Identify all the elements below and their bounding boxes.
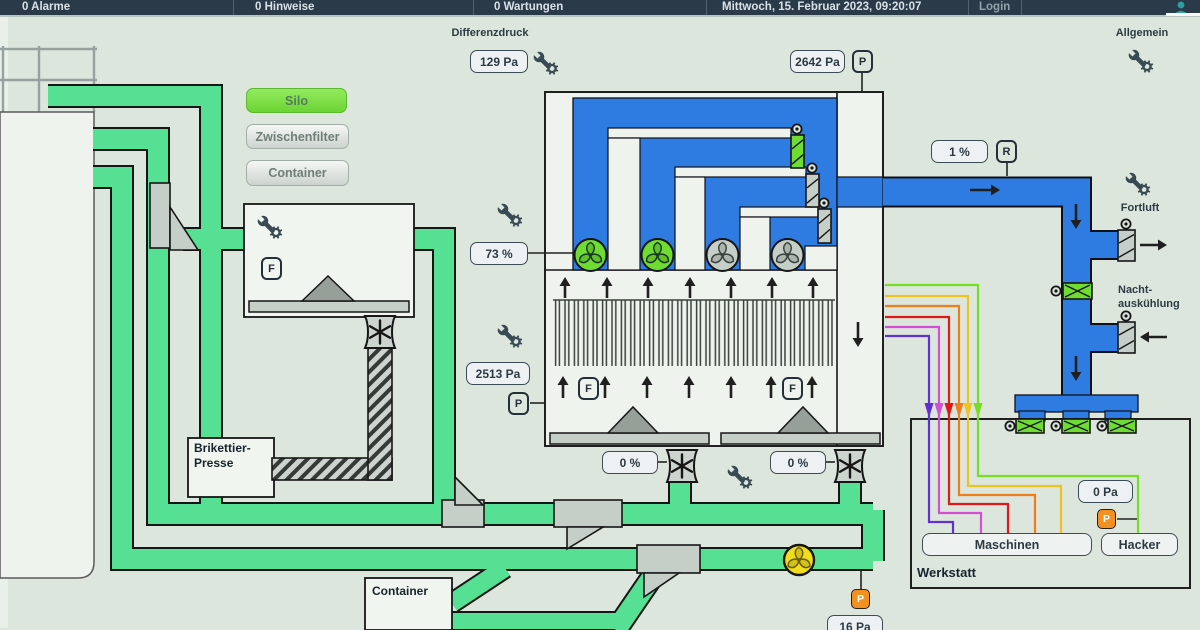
damper-icon [818,209,831,243]
wrench-gear-icon[interactable] [494,200,522,226]
discharge-right-chip[interactable]: 0 % [770,451,826,474]
silo-vessel [0,112,94,578]
differenzdruck-label: Differenzdruck [420,27,560,39]
fan-icon [575,239,607,271]
filter-monitor-badge: F [782,377,803,400]
filter-diff-pressure-chip[interactable]: 129 Pa [470,50,528,73]
pressure-alert-badge: P [851,589,870,609]
damper-icon [1108,419,1136,433]
header-active-strip [1166,13,1200,16]
damper-icon [791,135,804,168]
login-button[interactable]: Login [979,1,1010,15]
header-hints[interactable]: 0 Hinweise [255,1,314,15]
fan-speed-chip[interactable]: 73 % [470,242,528,265]
damper-icon [1063,283,1092,299]
pressure-badge: P [852,50,873,73]
motor-icon [1051,421,1060,430]
header-underline [0,15,1200,17]
motor-icon [1121,219,1130,228]
filter-monitor-badge: F [261,257,282,280]
wrench-gear-icon[interactable] [724,462,752,488]
pressure-alert-badge: P [1097,509,1116,529]
wrench-gear-icon[interactable] [1125,46,1153,72]
damper-icon [1016,419,1044,433]
rotary-valve-icon [835,450,865,482]
machine-duct-line [885,317,1008,533]
container-label: Container [372,584,428,599]
flow-arrow-icon [1140,332,1167,343]
motor-icon [807,163,816,172]
machine-duct-line [885,327,981,533]
filter-bags [553,300,835,366]
rotary-valve-icon [667,450,697,482]
header-alarms[interactable]: 0 Alarme [22,1,70,15]
werkstatt-pressure-chip[interactable]: 0 Pa [1078,480,1133,503]
regulator-badge: R [996,140,1017,163]
nachtauskuehlung-label-2: auskühlung [1118,298,1180,310]
header-bar: 0 Alarme 0 Hinweise 0 Wartungen Mittwoch… [0,0,1200,16]
hacker-button[interactable]: Hacker [1101,533,1178,556]
damper-icon [1062,419,1090,433]
pressure-badge: P [508,392,529,415]
rotary-valve-icon [365,316,395,348]
motor-icon [1097,421,1106,430]
damper-icon [806,174,819,207]
wrench-gear-icon[interactable] [494,321,522,347]
wrench-gear-icon[interactable] [530,48,558,74]
fan-icon [642,239,674,271]
filter-pressure-chip[interactable]: 2513 Pa [466,362,530,385]
motor-icon [1051,286,1060,295]
header-datetime: Mittwoch, 15. Februar 2023, 09:20:07 [722,1,921,15]
raw-gas-pressure-chip[interactable]: 2642 Pa [790,50,845,73]
nav-container-button[interactable]: Container [246,160,349,186]
nav-silo-button[interactable]: Silo [246,88,347,113]
fan-icon [772,239,804,271]
screw-conveyor [272,346,392,480]
transport-pressure-chip[interactable]: 16 Pa [827,615,883,630]
nachtauskuehlung-label-1: Nacht- [1118,284,1152,296]
motor-icon [1121,311,1130,320]
machine-duct-line [885,336,953,533]
allgemein-label: Allgemein [1102,27,1182,39]
damper-icon [1118,322,1135,353]
fortluft-label: Fortluft [1108,202,1172,214]
filter-monitor-badge: F [578,377,599,400]
damper-icon [1118,230,1135,261]
hmi-screen: { "header": { "alarms": "0 Alarme", "hin… [0,0,1200,630]
maschinen-button[interactable]: Maschinen [922,533,1092,556]
discharge-left-chip[interactable]: 0 % [602,451,658,474]
motor-icon [1005,421,1014,430]
motor-icon [792,124,801,133]
nav-zwischenfilter-button[interactable]: Zwischenfilter [246,124,349,149]
fan-icon [707,239,739,271]
wrench-gear-icon[interactable] [1122,169,1150,195]
briquette-press-label: Brikettier- Presse [194,441,251,471]
flow-arrow-icon [1140,240,1167,251]
motor-icon [819,198,828,207]
exhaust-damper-chip[interactable]: 1 % [931,140,988,163]
werkstatt-label: Werkstatt [917,565,976,580]
header-maintenance[interactable]: 0 Wartungen [494,1,563,15]
